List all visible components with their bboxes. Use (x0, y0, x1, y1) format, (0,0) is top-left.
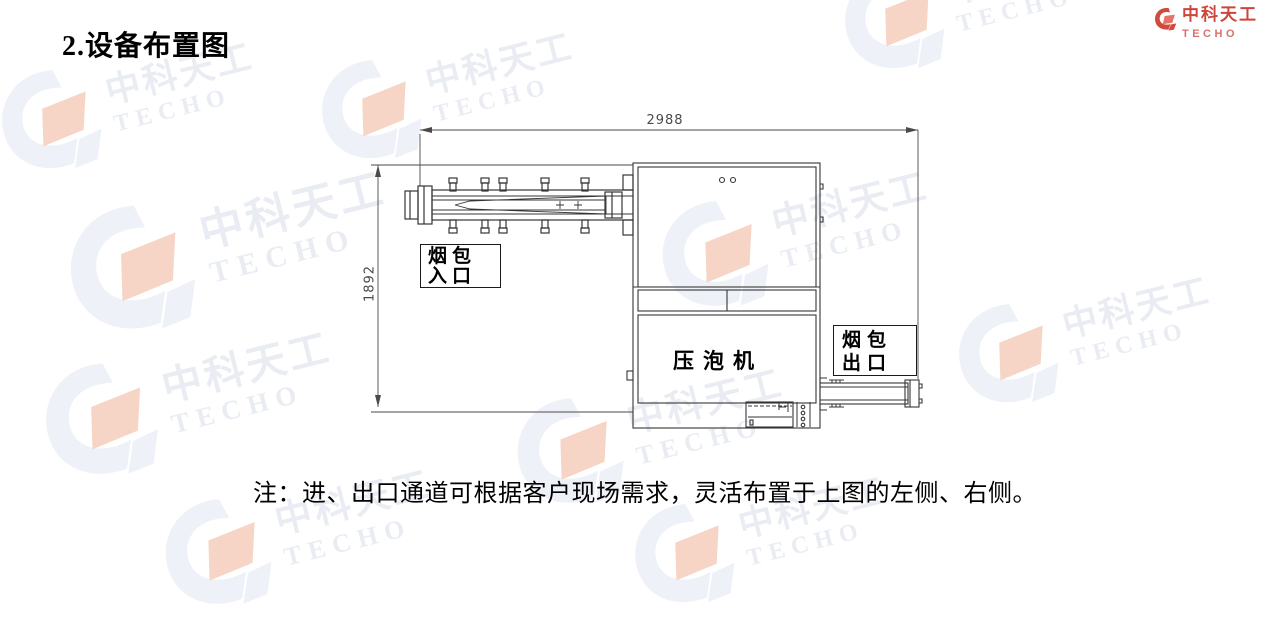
watermark-tile: 中科天工TECHO (829, 0, 1112, 85)
note-text: 注：进、出口通道可根据客户现场需求，灵活布置于上图的左侧、右侧。 (253, 473, 1037, 508)
page-title: 2.设备布置图 (62, 24, 230, 64)
techo-logo-icon (1154, 6, 1177, 32)
techo-logo-watermark-icon (51, 189, 210, 350)
watermark-layer: 中科天工TECHO中科天工TECHO中科天工TECHO中科天工TECHO中科天工… (0, 0, 1280, 544)
watermark-text-en: TECHO (778, 208, 939, 272)
watermark-text-en: TECHO (111, 77, 264, 137)
techo-logo-watermark-icon (943, 291, 1070, 420)
watermark-tile: 中科天工TECHO (148, 444, 448, 622)
techo-logo-watermark-icon (28, 348, 171, 494)
inlet-label-box: 烟包 入口 (420, 244, 501, 288)
watermark-tile: 中科天工TECHO (645, 146, 945, 325)
inlet-label-line2: 入口 (428, 267, 500, 287)
watermark-text-en: TECHO (169, 371, 343, 439)
exit-conveyor (820, 378, 922, 410)
techo-corner-logo: 中科天工 TECHO (1154, 6, 1258, 40)
watermark-text-cn: 中科天工 (623, 365, 787, 440)
techo-logo-watermark-icon (306, 47, 433, 176)
outlet-label-box: 烟包 出口 (833, 325, 917, 376)
corner-logo-text-en: TECHO (1182, 28, 1258, 40)
watermark-text-en: TECHO (744, 511, 897, 571)
watermark-text-en: TECHO (281, 506, 442, 570)
watermark-tile: 中科天工TECHO (51, 140, 406, 350)
techo-logo-watermark-icon (619, 491, 746, 620)
watermark-text-cn: 中科天工 (1059, 273, 1214, 344)
outlet-label-line1: 烟包 (842, 329, 916, 352)
techo-logo-watermark-icon (829, 0, 956, 85)
watermark-tile: 中科天工TECHO (28, 303, 349, 493)
watermark-tile: 中科天工TECHO (306, 8, 589, 176)
watermark-text-cn: 中科天工 (422, 29, 577, 100)
outlet-label-line2: 出口 (842, 352, 916, 375)
watermark-text-en: TECHO (431, 67, 584, 127)
watermark-text-cn: 中科天工 (945, 0, 1100, 9)
watermark-text-cn: 中科天工 (768, 168, 932, 243)
dimension-height-value: 1892 (363, 261, 378, 307)
techo-logo-watermark-icon (645, 187, 780, 324)
equipment-layout-diagram (0, 0, 1280, 544)
watermark-text-en: TECHO (633, 405, 794, 469)
entry-conveyor (405, 175, 633, 235)
techo-logo-watermark-icon (0, 57, 113, 186)
watermark-text-en: TECHO (954, 0, 1107, 36)
machine-body (627, 163, 823, 428)
watermark-text-cn: 中科天工 (158, 328, 335, 409)
corner-logo-text-cn: 中科天工 (1182, 6, 1258, 25)
watermark-tile: 中科天工TECHO (943, 252, 1226, 420)
dimension-width-value: 2988 (628, 113, 702, 128)
watermark-text-cn: 中科天工 (195, 167, 390, 256)
machine-label: 压泡机 (652, 345, 784, 375)
watermark-text-en: TECHO (1068, 311, 1221, 371)
inlet-label-line1: 烟包 (428, 247, 500, 267)
